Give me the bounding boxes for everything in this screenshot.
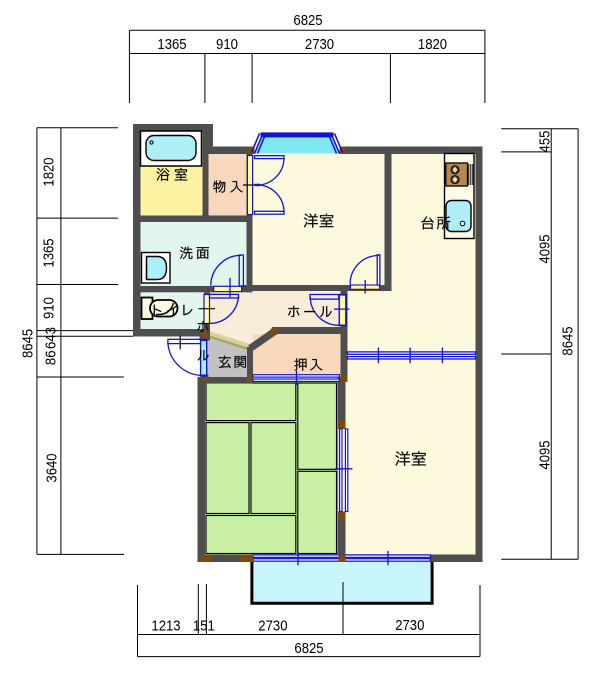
svg-text:910: 910 (216, 36, 238, 53)
svg-text:4095: 4095 (537, 440, 554, 469)
svg-text:1820: 1820 (418, 36, 447, 53)
svg-text:1365: 1365 (157, 36, 186, 53)
svg-text:6825: 6825 (293, 12, 322, 29)
svg-text:6825: 6825 (294, 640, 323, 657)
svg-text:1820: 1820 (40, 157, 57, 186)
svg-text:151: 151 (193, 618, 215, 635)
svg-text:1365: 1365 (40, 238, 57, 267)
svg-text:2730: 2730 (258, 618, 287, 635)
svg-text:2730: 2730 (305, 36, 334, 53)
svg-text:8645: 8645 (560, 326, 577, 355)
svg-text:3640: 3640 (43, 453, 60, 482)
svg-text:86: 86 (42, 351, 59, 366)
svg-text:1213: 1213 (151, 618, 180, 635)
svg-text:910: 910 (40, 297, 57, 319)
svg-text:8645: 8645 (19, 329, 36, 358)
svg-text:643: 643 (42, 327, 59, 349)
svg-text:455: 455 (537, 131, 554, 153)
svg-text:2730: 2730 (395, 617, 424, 634)
svg-text:4095: 4095 (537, 234, 554, 263)
